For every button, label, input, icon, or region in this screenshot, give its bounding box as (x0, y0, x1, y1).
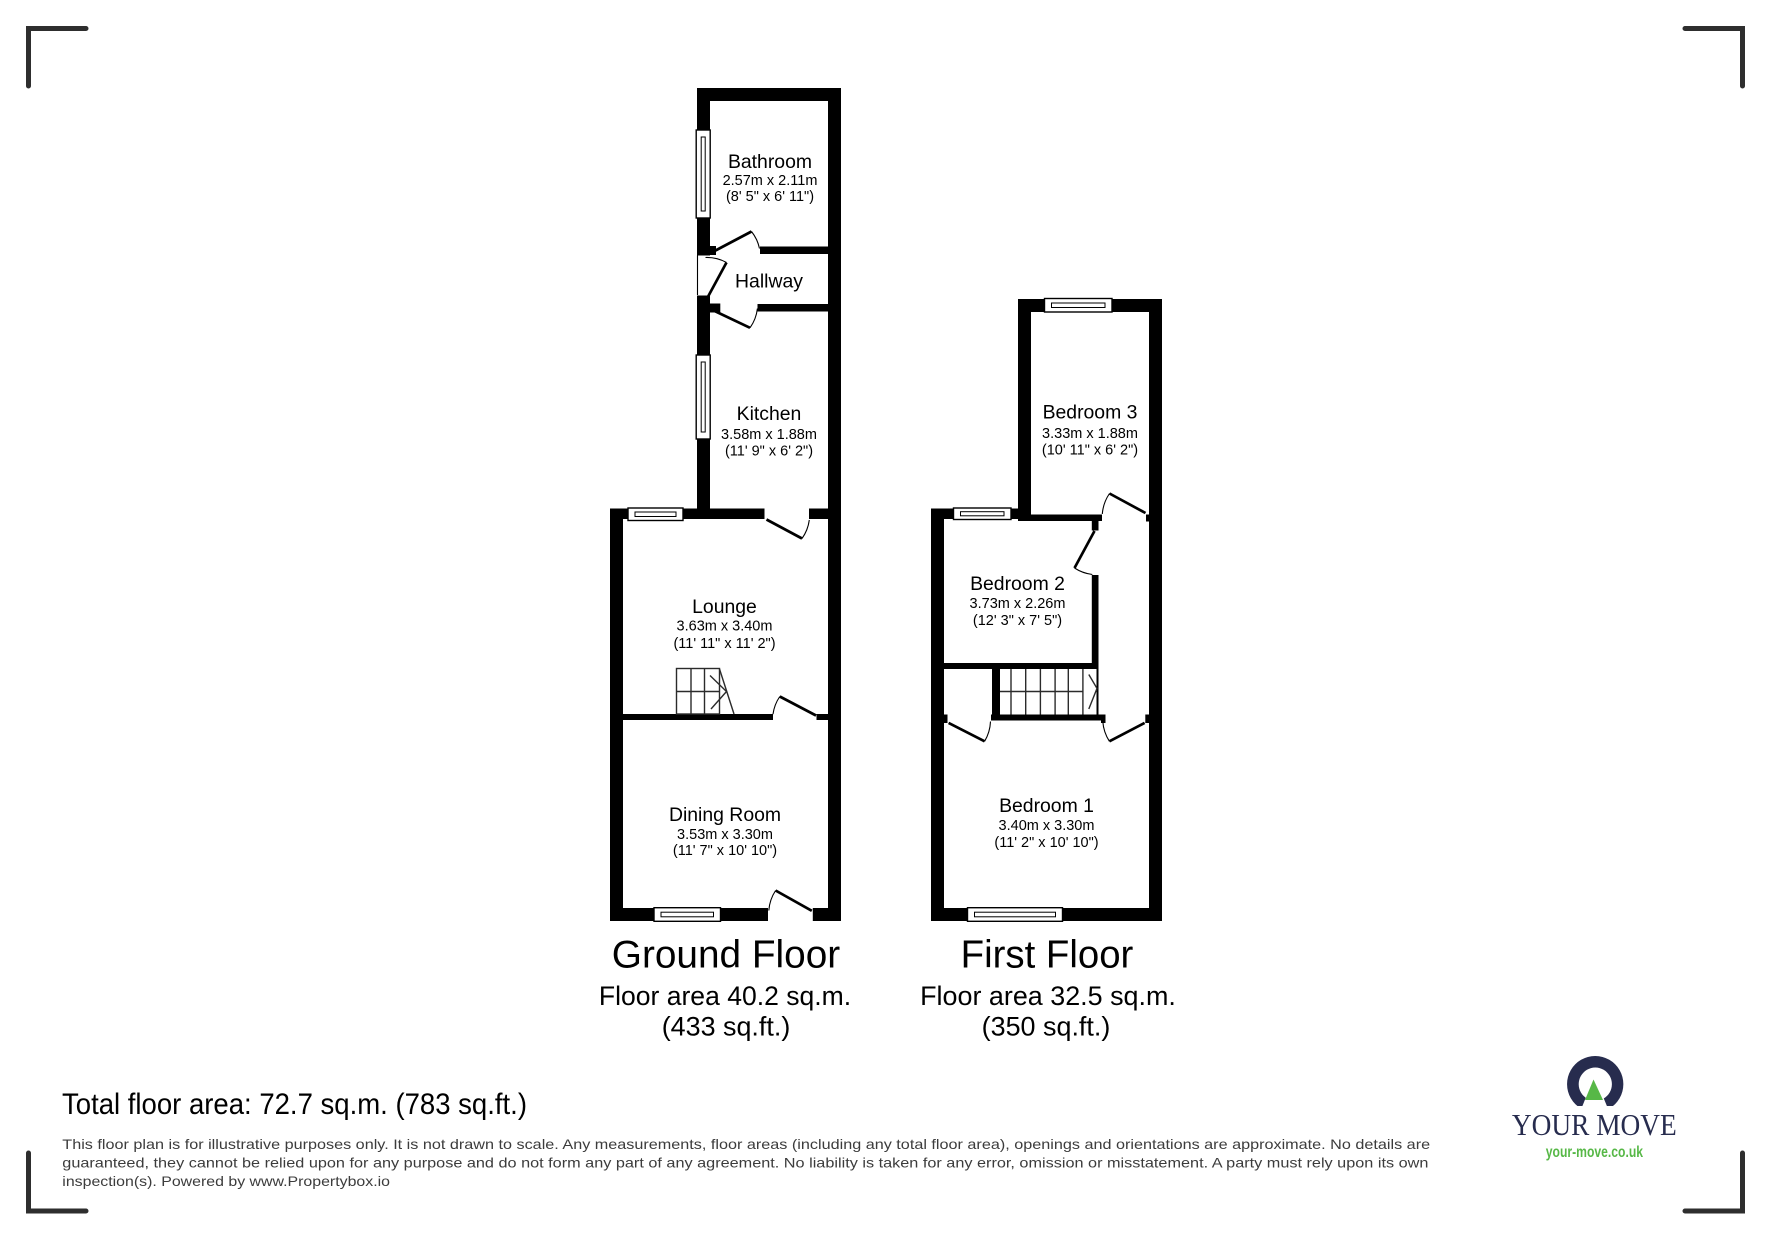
svg-text:(11' 11" x 11' 2"): (11' 11" x 11' 2") (673, 636, 775, 652)
svg-text:Dining Room: Dining Room (669, 804, 781, 826)
svg-text:Bedroom 2: Bedroom 2 (970, 573, 1065, 595)
svg-text:This floor plan is for illustr: This floor plan is for illustrative purp… (62, 1136, 1430, 1152)
svg-text:Ground Floor: Ground Floor (612, 934, 841, 977)
svg-text:First Floor: First Floor (961, 934, 1134, 977)
svg-text:Bathroom: Bathroom (728, 151, 812, 173)
svg-text:guaranteed, they cannot be rel: guaranteed, they cannot be relied upon f… (62, 1155, 1428, 1171)
svg-text:3.53m x 3.30m: 3.53m x 3.30m (677, 827, 773, 843)
svg-text:(11' 7" x 10' 10"): (11' 7" x 10' 10") (673, 843, 777, 859)
svg-text:Lounge: Lounge (692, 596, 757, 618)
svg-text:Bedroom 3: Bedroom 3 (1043, 401, 1138, 423)
svg-text:(11' 2" x 10' 10"): (11' 2" x 10' 10") (994, 835, 1098, 851)
svg-text:3.58m x 1.88m: 3.58m x 1.88m (721, 427, 817, 443)
svg-text:Bedroom 1: Bedroom 1 (999, 795, 1094, 817)
svg-text:Floor area 32.5 sq.m.: Floor area 32.5 sq.m. (920, 981, 1176, 1011)
svg-text:3.73m x 2.26m: 3.73m x 2.26m (970, 596, 1066, 612)
svg-text:(11' 9" x 6' 2"): (11' 9" x 6' 2") (725, 444, 813, 460)
svg-text:Total floor area: 72.7 sq.m. (: Total floor area: 72.7 sq.m. (783 sq.ft.… (62, 1088, 527, 1121)
svg-text:(10' 11" x 6' 2"): (10' 11" x 6' 2") (1042, 443, 1138, 459)
svg-text:(8' 5" x 6' 11"): (8' 5" x 6' 11") (726, 189, 814, 205)
svg-text:3.33m x 1.88m: 3.33m x 1.88m (1042, 426, 1138, 442)
svg-text:Kitchen: Kitchen (737, 403, 802, 425)
svg-text:Floor area 40.2 sq.m.: Floor area 40.2 sq.m. (599, 981, 851, 1011)
svg-text:2.57m x 2.11m: 2.57m x 2.11m (723, 173, 818, 189)
svg-text:3.40m x 3.30m: 3.40m x 3.30m (999, 818, 1095, 834)
svg-text:Hallway: Hallway (735, 270, 803, 292)
svg-text:(433 sq.ft.): (433 sq.ft.) (662, 1012, 791, 1042)
svg-text:YOUR MOVE: YOUR MOVE (1512, 1108, 1677, 1142)
svg-text:(350 sq.ft.): (350 sq.ft.) (982, 1012, 1111, 1042)
svg-text:inspection(s). Powered by www.: inspection(s). Powered by www.Propertybo… (62, 1173, 390, 1189)
svg-text:your-move.co.uk: your-move.co.uk (1546, 1144, 1643, 1161)
svg-text:3.63m x 3.40m: 3.63m x 3.40m (677, 619, 773, 635)
svg-text:(12' 3" x 7' 5"): (12' 3" x 7' 5") (973, 613, 1062, 629)
